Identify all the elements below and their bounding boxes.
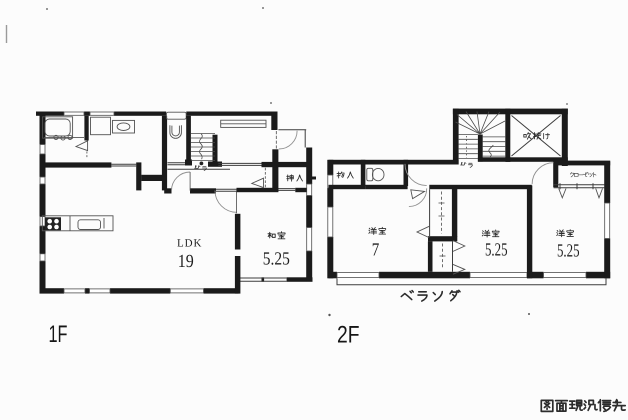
- svg-text:2F: 2F: [337, 322, 360, 349]
- svg-text:LDK: LDK: [177, 237, 202, 249]
- svg-text:5.25: 5.25: [485, 241, 508, 261]
- svg-text:19: 19: [178, 252, 194, 272]
- svg-text:5.25: 5.25: [263, 250, 290, 270]
- svg-text:5.25: 5.25: [557, 242, 580, 262]
- svg-text:7: 7: [372, 241, 380, 261]
- svg-text:1F: 1F: [49, 321, 68, 348]
